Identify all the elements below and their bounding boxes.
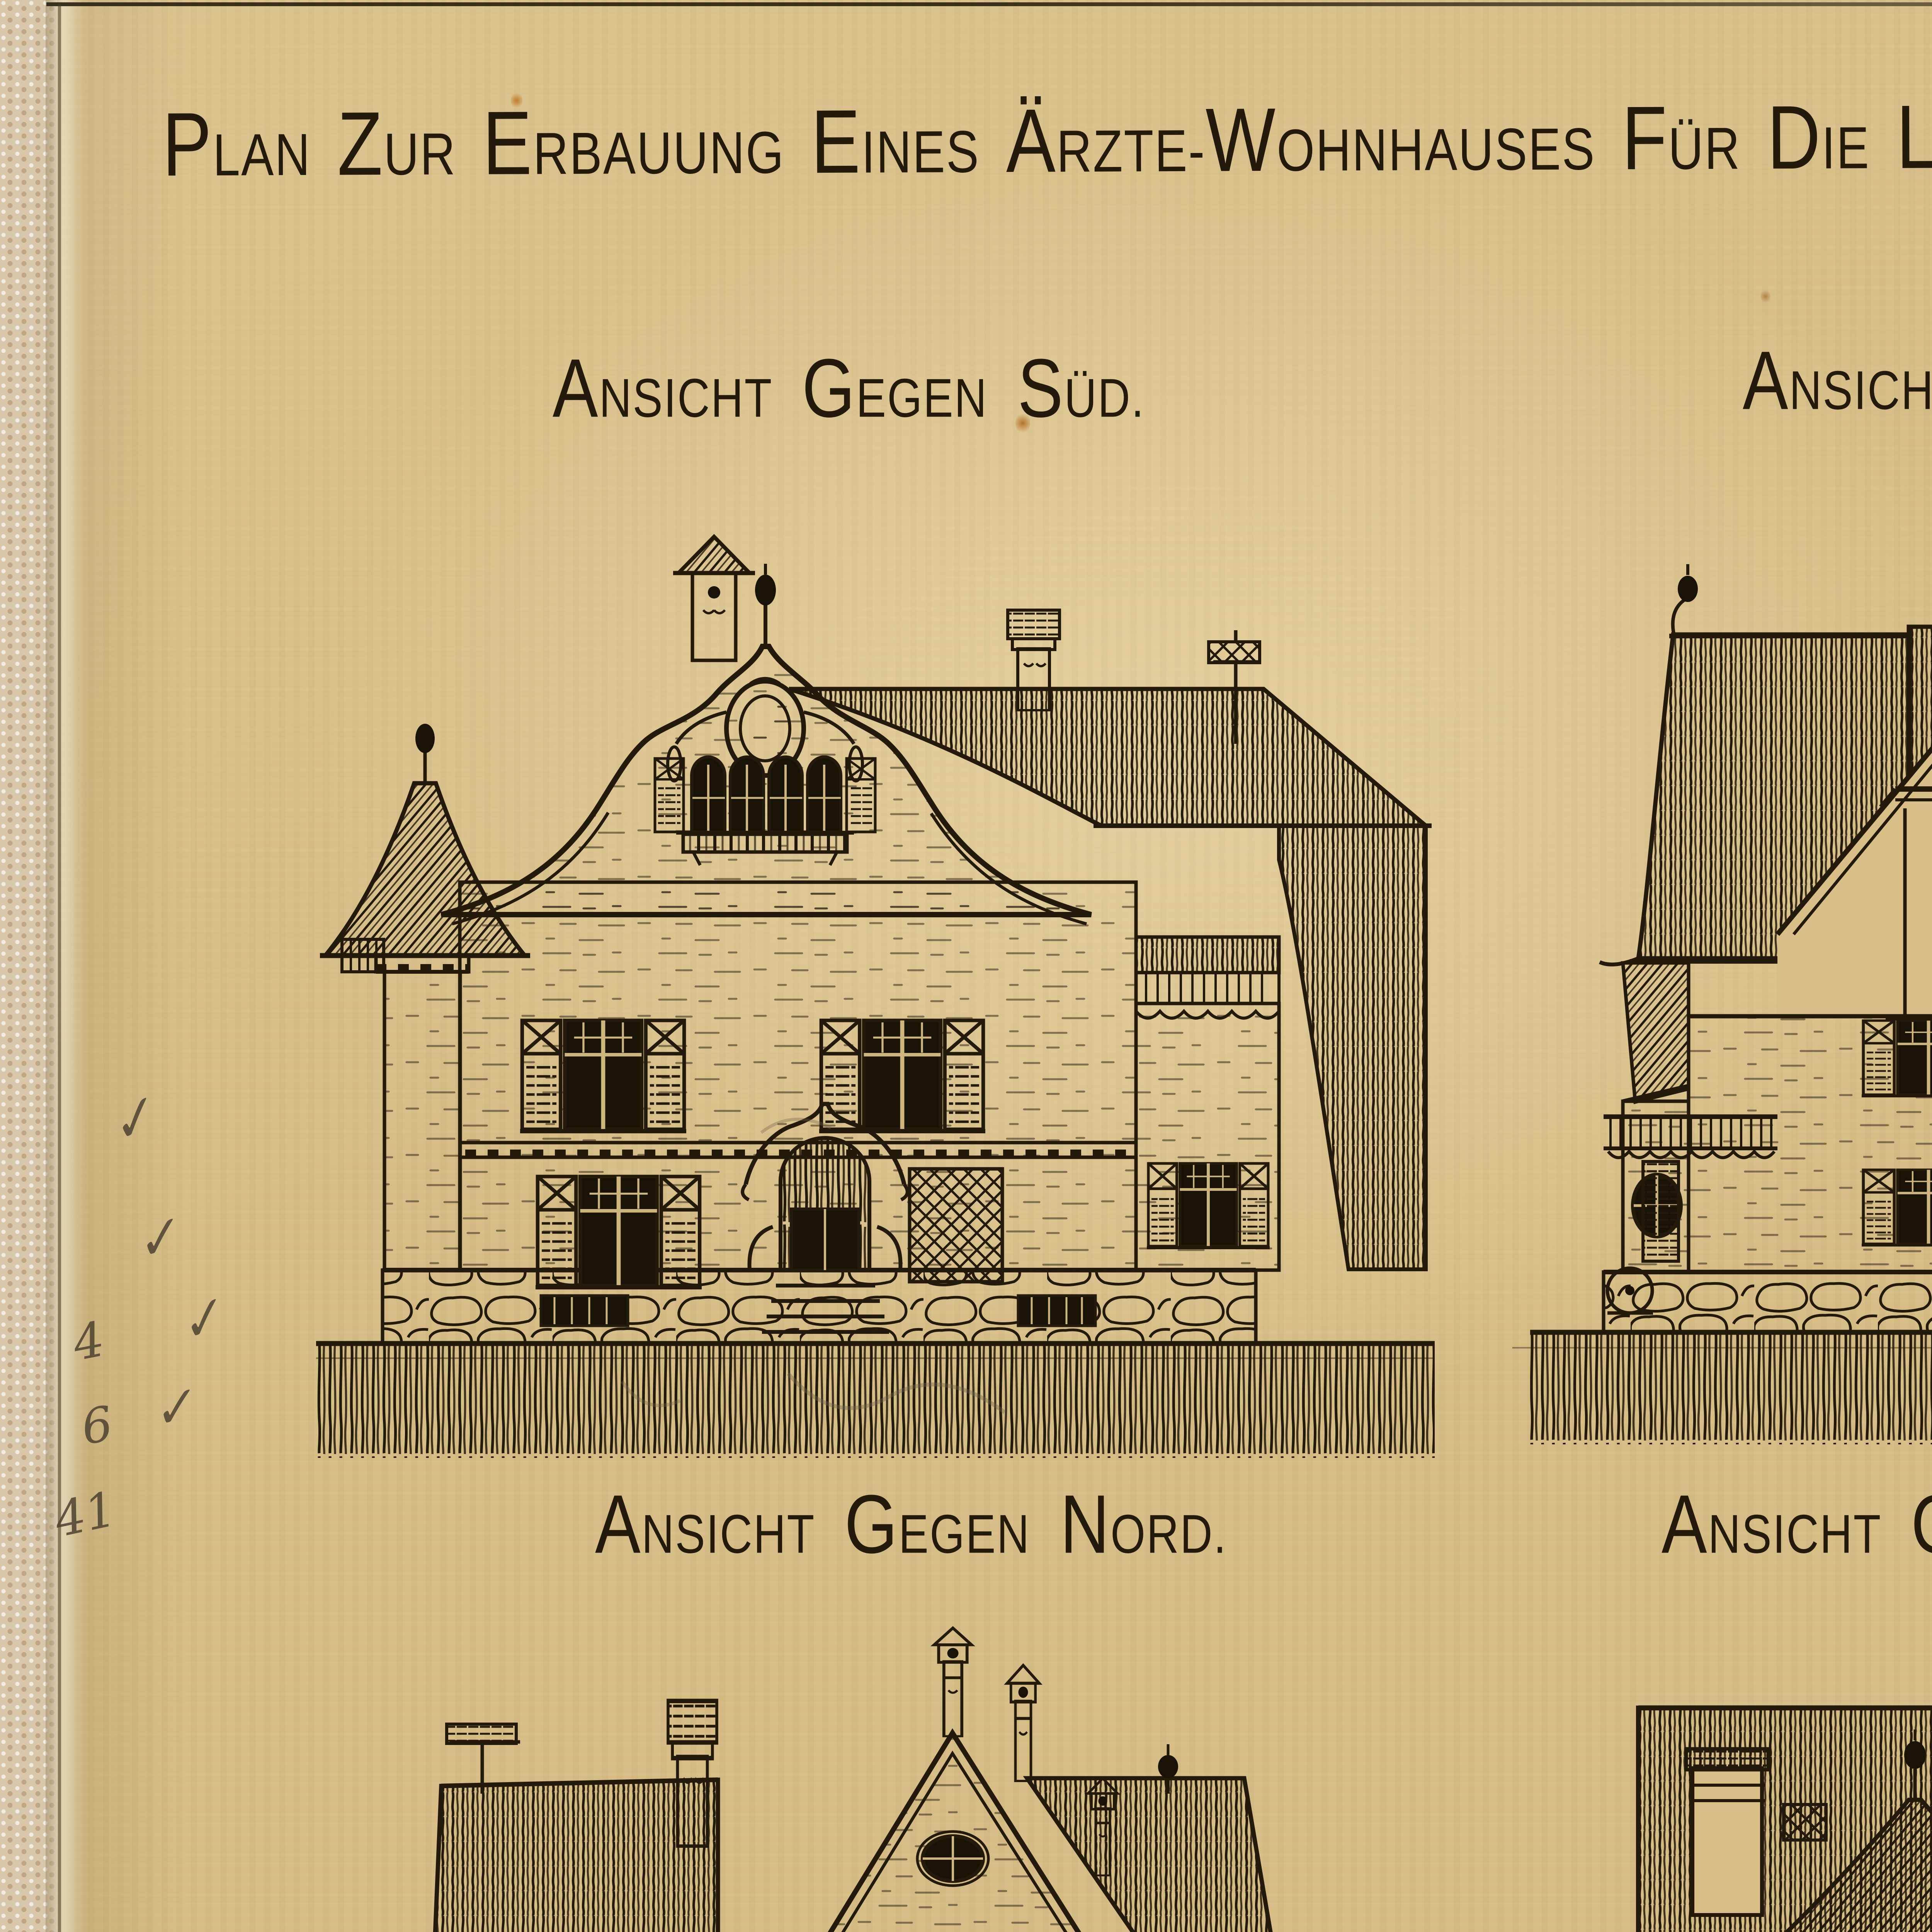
paper-crease xyxy=(46,0,92,1932)
margin-checkmark: ✓ xyxy=(170,1284,231,1356)
margin-checkmark: ✓ xyxy=(99,1083,165,1158)
elevation-north-drawing xyxy=(410,1619,1321,1932)
label-view-east: ANSICHT GEGEN OST. xyxy=(1743,339,1932,407)
border-line-top xyxy=(46,2,1932,6)
margin-checkmark: ✓ xyxy=(145,1375,200,1442)
label-view-north: ANSICHT GEGEN NORD. xyxy=(595,1483,1155,1551)
plan-sheet: PLAN ZUR ERBAUUNG EINES ÄRZTE-WOHNHAUSES… xyxy=(0,0,1932,1932)
margin-number: 41 xyxy=(50,1481,121,1548)
elevation-south-drawing xyxy=(305,527,1445,1480)
label-view-west: ANSICHT GEGEN WEST. xyxy=(1662,1483,1932,1551)
paper-stain xyxy=(1760,289,1770,304)
margin-checkmark: ✓ xyxy=(127,1204,186,1274)
page-title: PLAN ZUR ERBAUUNG EINES ÄRZTE-WOHNHAUSES… xyxy=(162,89,1932,174)
border-line-left xyxy=(58,4,61,1932)
elevation-east-drawing xyxy=(1507,514,1932,1468)
label-view-south: ANSICHT GEGEN SÜD. xyxy=(553,347,1066,415)
elevation-west-drawing xyxy=(1577,1658,1932,1932)
